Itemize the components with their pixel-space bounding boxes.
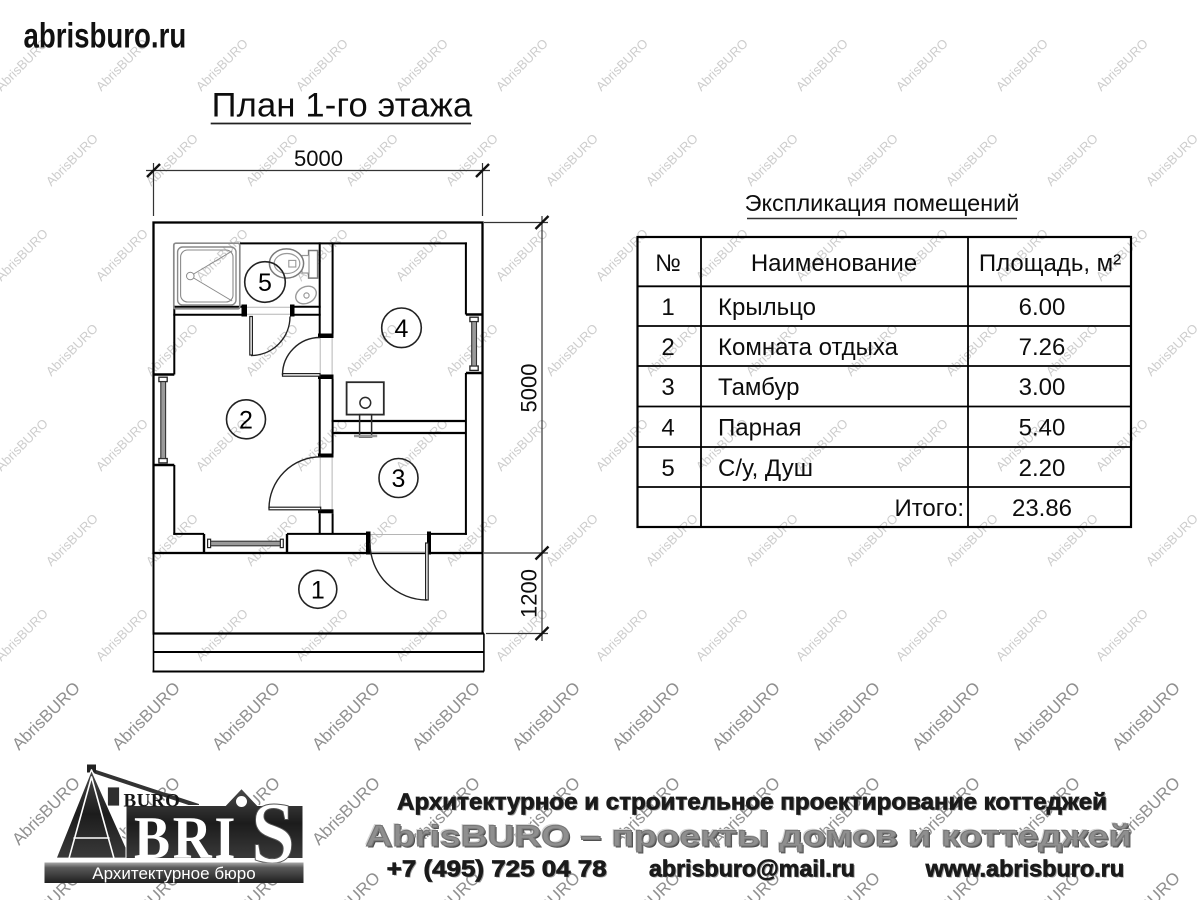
svg-text:С/у, Душ: С/у, Душ: [718, 455, 813, 482]
svg-text:Итого:: Итого:: [894, 495, 964, 522]
svg-text:Экспликация помещений: Экспликация помещений: [745, 190, 1020, 216]
svg-text:AbrisBURO: AbrisBURO: [308, 678, 384, 754]
svg-text:Площадь, м²: Площадь, м²: [979, 250, 1121, 277]
svg-text:abrisburo@mail.ru: abrisburo@mail.ru: [649, 856, 855, 882]
svg-text:AbrisBURO: AbrisBURO: [193, 36, 251, 94]
svg-text:AbrisBURO: AbrisBURO: [393, 606, 451, 664]
svg-text:abrisburo.ru: abrisburo.ru: [24, 15, 187, 55]
svg-text:5000: 5000: [517, 364, 542, 413]
svg-text:AbrisBURO: AbrisBURO: [643, 511, 701, 569]
svg-text:AbrisBURO: AbrisBURO: [93, 226, 151, 284]
svg-text:AbrisBURO: AbrisBURO: [93, 606, 151, 664]
svg-text:AbrisBURO: AbrisBURO: [1143, 511, 1200, 569]
svg-text:AbrisBURO: AbrisBURO: [43, 511, 101, 569]
svg-text:AbrisBURO: AbrisBURO: [993, 36, 1051, 94]
svg-text:AbrisBURO: AbrisBURO: [393, 226, 451, 284]
svg-text:AbrisBURO: AbrisBURO: [943, 321, 1001, 379]
svg-text:AbrisBURO: AbrisBURO: [343, 131, 401, 189]
svg-text:AbrisBURO: AbrisBURO: [893, 416, 951, 474]
svg-text:Тамбур: Тамбур: [718, 374, 799, 401]
svg-text:AbrisBURO: AbrisBURO: [708, 678, 784, 754]
svg-text:AbrisBURO: AbrisBURO: [1043, 131, 1101, 189]
svg-text:1: 1: [661, 294, 674, 321]
svg-text:AbrisBURO: AbrisBURO: [293, 226, 351, 284]
svg-text:AbrisBURO: AbrisBURO: [793, 606, 851, 664]
svg-text:4: 4: [395, 315, 409, 343]
svg-text:AbrisBURO: AbrisBURO: [793, 36, 851, 94]
svg-text:AbrisBURO – проекты домов и ко: AbrisBURO – проекты домов и коттеджей: [366, 820, 1132, 853]
svg-text:5000: 5000: [294, 146, 343, 171]
svg-text:AbrisBURO: AbrisBURO: [1143, 321, 1200, 379]
svg-text:2: 2: [661, 334, 674, 361]
svg-text:AbrisBURO: AbrisBURO: [993, 606, 1051, 664]
svg-text:AbrisBURO: AbrisBURO: [408, 678, 484, 754]
svg-text:AbrisBURO: AbrisBURO: [243, 511, 301, 569]
svg-text:3.00: 3.00: [1019, 374, 1066, 401]
svg-text:2: 2: [239, 406, 253, 434]
svg-text:5.40: 5.40: [1019, 415, 1066, 442]
svg-text:AbrisBURO: AbrisBURO: [0, 416, 51, 474]
svg-text:2.20: 2.20: [1019, 455, 1066, 482]
svg-text:1200: 1200: [517, 569, 542, 618]
svg-text:BRI: BRI: [134, 805, 238, 871]
svg-text:AbrisBURO: AbrisBURO: [308, 868, 384, 900]
svg-text:№: №: [655, 250, 681, 277]
svg-text:6.00: 6.00: [1019, 294, 1066, 321]
svg-text:AbrisBURO: AbrisBURO: [1008, 678, 1084, 754]
svg-text:AbrisBURO: AbrisBURO: [1093, 606, 1151, 664]
svg-text:AbrisBURO: AbrisBURO: [243, 131, 301, 189]
svg-text:AbrisBURO: AbrisBURO: [693, 606, 751, 664]
svg-text:AbrisBURO: AbrisBURO: [743, 131, 801, 189]
svg-text:AbrisBURO: AbrisBURO: [808, 678, 884, 754]
svg-text:AbrisBURO: AbrisBURO: [543, 511, 601, 569]
svg-text:AbrisBURO: AbrisBURO: [743, 511, 801, 569]
svg-text:Крыльцо: Крыльцо: [718, 294, 816, 321]
svg-text:7.26: 7.26: [1019, 334, 1066, 361]
svg-text:Архитектурное и строительное п: Архитектурное и строительное проектирова…: [397, 789, 1107, 815]
svg-text:AbrisBURO: AbrisBURO: [493, 36, 551, 94]
svg-text:AbrisBURO: AbrisBURO: [908, 678, 984, 754]
svg-text:AbrisBURO: AbrisBURO: [208, 678, 284, 754]
svg-text:AbrisBURO: AbrisBURO: [443, 131, 501, 189]
svg-text:AbrisBURO: AbrisBURO: [8, 678, 84, 754]
svg-text:AbrisBURO: AbrisBURO: [93, 416, 151, 474]
svg-text:Архитектурное бюро: Архитектурное бюро: [92, 864, 255, 883]
svg-text:+7 (495) 725 04 78: +7 (495) 725 04 78: [387, 856, 607, 882]
svg-text:AbrisBURO: AbrisBURO: [293, 606, 351, 664]
svg-text:AbrisBURO: AbrisBURO: [608, 678, 684, 754]
svg-text:AbrisBURO: AbrisBURO: [543, 321, 601, 379]
svg-text:AbrisBURO: AbrisBURO: [593, 606, 651, 664]
svg-text:AbrisBURO: AbrisBURO: [443, 511, 501, 569]
svg-text:3: 3: [392, 465, 406, 493]
svg-text:AbrisBURO: AbrisBURO: [943, 131, 1001, 189]
svg-text:23.86: 23.86: [1012, 495, 1072, 522]
svg-text:1: 1: [311, 576, 325, 604]
svg-text:План 1-го этажа: План 1-го этажа: [212, 87, 473, 125]
svg-text:www.abrisburo.ru: www.abrisburo.ru: [925, 856, 1125, 882]
svg-text:AbrisBURO: AbrisBURO: [1143, 131, 1200, 189]
svg-text:Комната отдыха: Комната отдыха: [718, 334, 899, 361]
svg-text:AbrisBURO: AbrisBURO: [343, 321, 401, 379]
svg-text:AbrisBURO: AbrisBURO: [1093, 36, 1151, 94]
svg-text:AbrisBURO: AbrisBURO: [693, 36, 751, 94]
svg-text:AbrisBURO: AbrisBURO: [893, 606, 951, 664]
svg-text:AbrisBURO: AbrisBURO: [1108, 678, 1184, 754]
svg-text:AbrisBURO: AbrisBURO: [393, 36, 451, 94]
svg-text:AbrisBURO: AbrisBURO: [0, 606, 51, 664]
svg-text:AbrisBURO: AbrisBURO: [108, 678, 184, 754]
svg-text:AbrisBURO: AbrisBURO: [843, 511, 901, 569]
svg-text:AbrisBURO: AbrisBURO: [643, 131, 701, 189]
svg-text:AbrisBURO: AbrisBURO: [143, 321, 201, 379]
svg-text:AbrisBURO: AbrisBURO: [843, 131, 901, 189]
svg-text:Наименование: Наименование: [751, 250, 917, 277]
svg-text:3: 3: [661, 374, 674, 401]
svg-text:5: 5: [258, 269, 272, 297]
svg-text:AbrisBURO: AbrisBURO: [193, 226, 251, 284]
svg-text:AbrisBURO: AbrisBURO: [293, 416, 351, 474]
svg-text:Парная: Парная: [718, 415, 802, 442]
svg-text:AbrisBURO: AbrisBURO: [1093, 416, 1151, 474]
svg-text:AbrisBURO: AbrisBURO: [193, 606, 251, 664]
svg-text:AbrisBURO: AbrisBURO: [143, 131, 201, 189]
svg-text:AbrisBURO: AbrisBURO: [543, 131, 601, 189]
svg-text:AbrisBURO: AbrisBURO: [293, 36, 351, 94]
svg-text:AbrisBURO: AbrisBURO: [143, 511, 201, 569]
svg-text:AbrisBURO: AbrisBURO: [893, 36, 951, 94]
svg-text:AbrisBURO: AbrisBURO: [593, 416, 651, 474]
svg-text:AbrisBURO: AbrisBURO: [43, 131, 101, 189]
svg-text:5: 5: [661, 455, 674, 482]
svg-text:AbrisBURO: AbrisBURO: [593, 36, 651, 94]
svg-text:4: 4: [661, 415, 674, 442]
svg-text:AbrisBURO: AbrisBURO: [43, 321, 101, 379]
svg-text:AbrisBURO: AbrisBURO: [0, 226, 51, 284]
svg-text:AbrisBURO: AbrisBURO: [508, 678, 584, 754]
svg-text:AbrisBURO: AbrisBURO: [593, 226, 651, 284]
